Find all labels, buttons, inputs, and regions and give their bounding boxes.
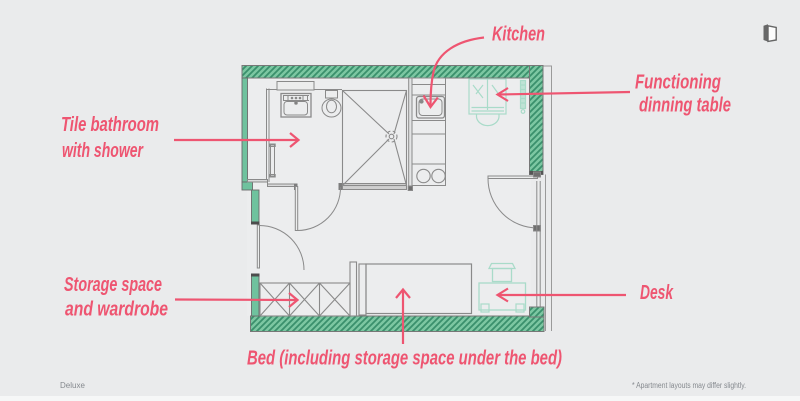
svg-text:Kitchen: Kitchen [492,24,545,46]
svg-text:Deluxe: Deluxe [60,381,85,390]
svg-text:Storage space: Storage space [64,274,162,296]
svg-text:Tile bathroom: Tile bathroom [61,114,159,136]
svg-text:* Apartment layouts may differ: * Apartment layouts may differ slightly. [632,381,746,390]
svg-text:Desk: Desk [640,282,674,304]
svg-text:Functioning: Functioning [635,72,721,94]
svg-text:Bed (including storage space u: Bed (including storage space under the b… [247,348,562,370]
svg-text:with shower: with shower [62,140,144,162]
svg-text:dinning table: dinning table [639,95,731,117]
svg-text:and wardrobe: and wardrobe [65,299,168,321]
